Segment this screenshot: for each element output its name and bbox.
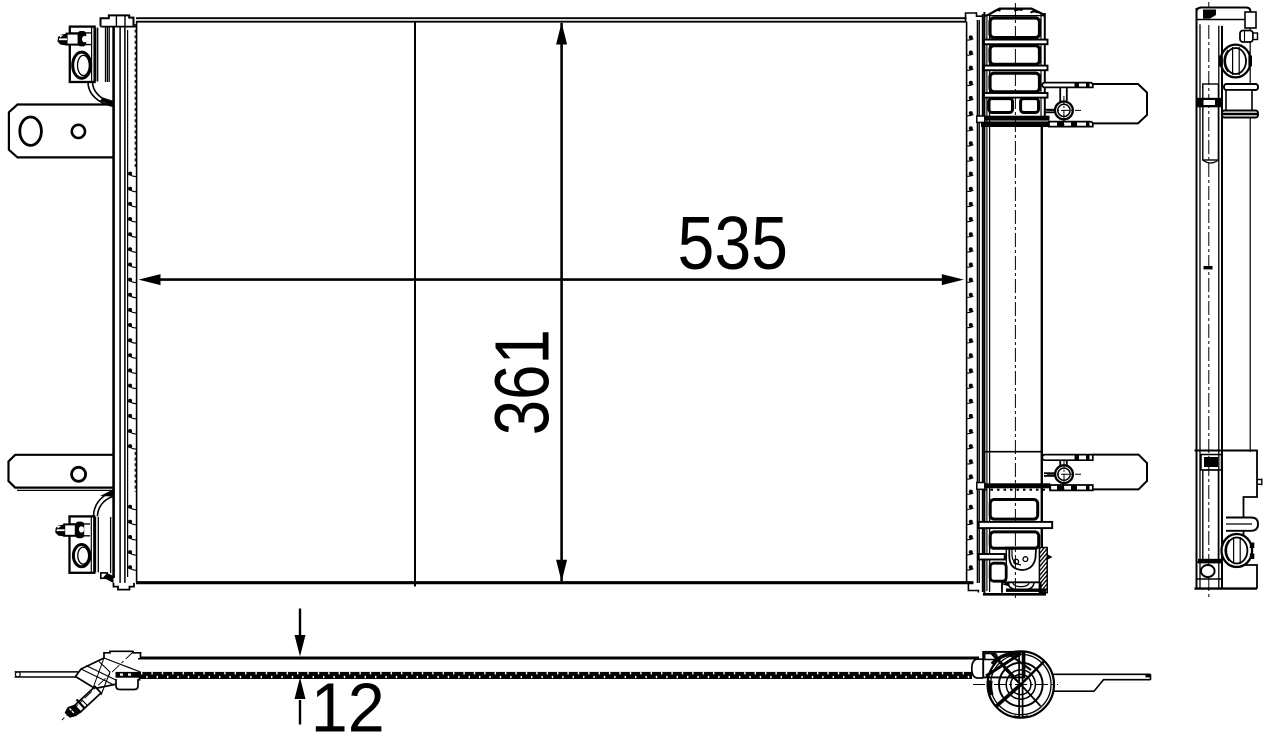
svg-text:361: 361: [479, 329, 565, 435]
svg-text:12: 12: [311, 668, 385, 736]
svg-text:535: 535: [678, 201, 789, 285]
